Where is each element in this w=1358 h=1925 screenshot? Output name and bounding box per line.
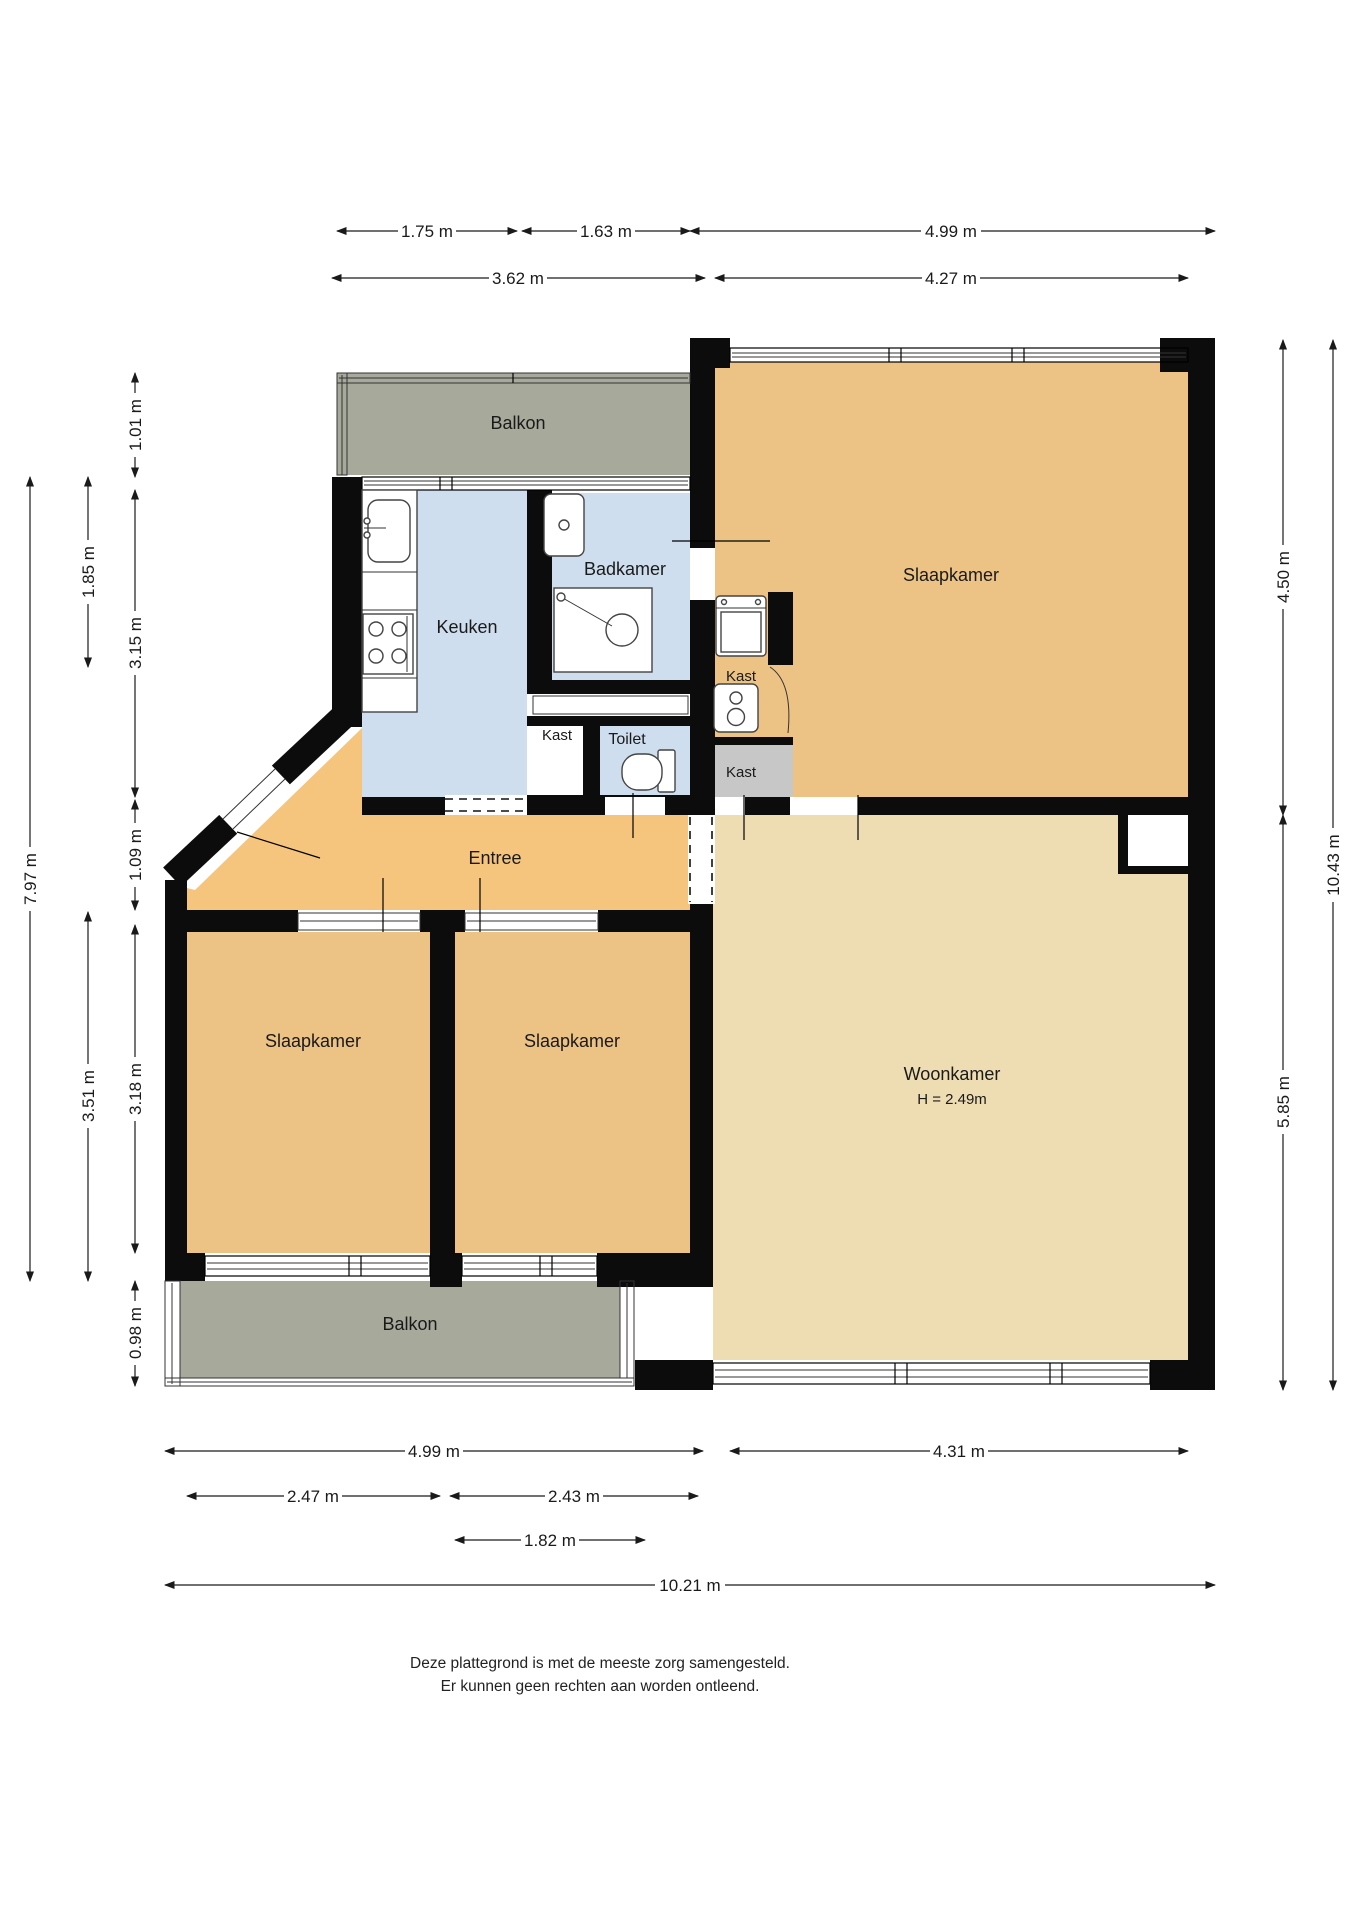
footer: Deze plattegrond is met de meeste zorg s… xyxy=(410,1655,790,1695)
svg-text:1.82 m: 1.82 m xyxy=(524,1531,576,1550)
open-connection-entree-livingroom xyxy=(688,815,715,904)
bedroom-left-floor xyxy=(187,932,430,1253)
svg-text:1.09 m: 1.09 m xyxy=(126,829,145,881)
svg-text:7.97 m: 7.97 m xyxy=(21,853,40,905)
svg-text:4.99 m: 4.99 m xyxy=(408,1442,460,1461)
dim-left-7: 3.18 m xyxy=(124,925,146,1253)
dim-bottom-2: 4.31 m xyxy=(730,1440,1188,1461)
washing-machine-icon xyxy=(716,596,766,656)
dim-top-5: 4.27 m xyxy=(715,267,1188,288)
dim-bottom-6: 10.21 m xyxy=(165,1574,1215,1595)
bathroom-label: Badkamer xyxy=(584,559,666,579)
bedroom-left-label: Slaapkamer xyxy=(265,1031,361,1051)
svg-text:4.50 m: 4.50 m xyxy=(1274,551,1293,603)
svg-text:3.18 m: 3.18 m xyxy=(126,1063,145,1115)
svg-text:1.01 m: 1.01 m xyxy=(126,399,145,451)
footer-line2: Er kunnen geen rechten aan worden ontlee… xyxy=(441,1678,760,1695)
footer-line1: Deze plattegrond is met de meeste zorg s… xyxy=(410,1655,790,1672)
kitchen-sink-icon xyxy=(364,500,410,562)
svg-text:1.75 m: 1.75 m xyxy=(401,222,453,241)
toilet-door-opening xyxy=(605,797,665,815)
bedroom-middle-floor xyxy=(455,932,690,1253)
closet-washer-label: Kast xyxy=(726,668,757,685)
boiler-icon xyxy=(714,684,758,732)
dim-top-3: 4.99 m xyxy=(690,220,1215,241)
svg-text:5.85 m: 5.85 m xyxy=(1274,1076,1293,1128)
svg-text:2.47 m: 2.47 m xyxy=(287,1487,339,1506)
dim-right-1: 4.50 m xyxy=(1272,340,1294,815)
dim-right-3: 10.43 m xyxy=(1322,340,1344,1390)
toilet-icon xyxy=(622,750,675,792)
toilet-label: Toilet xyxy=(608,731,646,748)
ceiling-height-label: H = 2.49m xyxy=(917,1091,987,1108)
bathroom-sink-icon xyxy=(544,494,584,556)
dim-top-2: 1.63 m xyxy=(522,220,690,241)
stove-icon xyxy=(363,614,413,674)
kitchen-label: Keuken xyxy=(436,617,497,637)
closet-gray-label: Kast xyxy=(726,764,757,781)
floorplan-drawing: Balkon Keuken Badkamer Slaapkamer Kast K… xyxy=(0,0,1358,1920)
livingroom-label: Woonkamer xyxy=(904,1064,1001,1084)
livingroom-floor xyxy=(713,815,1188,1360)
balcony-bottom-label: Balkon xyxy=(382,1314,437,1334)
svg-text:4.99 m: 4.99 m xyxy=(925,222,977,241)
svg-text:1.63 m: 1.63 m xyxy=(580,222,632,241)
dim-bottom-4: 2.43 m xyxy=(450,1485,698,1506)
livingroom-niche xyxy=(1128,815,1188,866)
open-connection-kitchen-entree xyxy=(445,795,527,815)
shower-icon xyxy=(554,588,652,672)
window-livingroom xyxy=(713,1363,1150,1384)
window-bedroom-left xyxy=(205,1256,430,1276)
dim-left-3: 3.51 m xyxy=(77,912,99,1281)
room-floors xyxy=(180,362,1188,1378)
dim-left-4: 1.01 m xyxy=(124,373,146,477)
floorplan-page: Balkon Keuken Badkamer Slaapkamer Kast K… xyxy=(0,0,1358,1920)
window-bedroom-topright xyxy=(730,348,1188,362)
dim-bottom-5: 1.82 m xyxy=(455,1529,645,1550)
dim-right-2: 5.85 m xyxy=(1272,815,1294,1390)
svg-text:3.15 m: 3.15 m xyxy=(126,617,145,669)
window-bedroom-middle xyxy=(462,1256,597,1276)
dim-top-1: 1.75 m xyxy=(337,220,517,241)
dim-top-4: 3.62 m xyxy=(332,267,705,288)
svg-text:10.43 m: 10.43 m xyxy=(1324,834,1343,895)
svg-text:2.43 m: 2.43 m xyxy=(548,1487,600,1506)
dim-left-1: 7.97 m xyxy=(19,477,41,1281)
dim-left-8: 0.98 m xyxy=(124,1281,146,1386)
dim-bottom-1: 4.99 m xyxy=(165,1440,703,1461)
duct-strip xyxy=(533,696,688,714)
dim-left-5: 3.15 m xyxy=(124,490,146,797)
svg-text:1.85 m: 1.85 m xyxy=(79,546,98,598)
dim-left-6: 1.09 m xyxy=(124,800,146,910)
svg-text:0.98 m: 0.98 m xyxy=(126,1307,145,1359)
bedroom-middle-label: Slaapkamer xyxy=(524,1031,620,1051)
bathroom-door-opening xyxy=(690,548,715,600)
closet-hall-label: Kast xyxy=(542,727,573,744)
svg-text:3.62 m: 3.62 m xyxy=(492,269,544,288)
entree-label: Entree xyxy=(468,848,521,868)
svg-text:4.31 m: 4.31 m xyxy=(933,1442,985,1461)
svg-text:4.27 m: 4.27 m xyxy=(925,269,977,288)
window-kitchen xyxy=(362,477,690,490)
dim-bottom-3: 2.47 m xyxy=(187,1485,440,1506)
balcony-top-label: Balkon xyxy=(490,413,545,433)
svg-text:3.51 m: 3.51 m xyxy=(79,1070,98,1122)
bedroom-topright-label: Slaapkamer xyxy=(903,565,999,585)
svg-text:10.21 m: 10.21 m xyxy=(659,1576,720,1595)
dim-left-2: 1.85 m xyxy=(77,477,99,667)
